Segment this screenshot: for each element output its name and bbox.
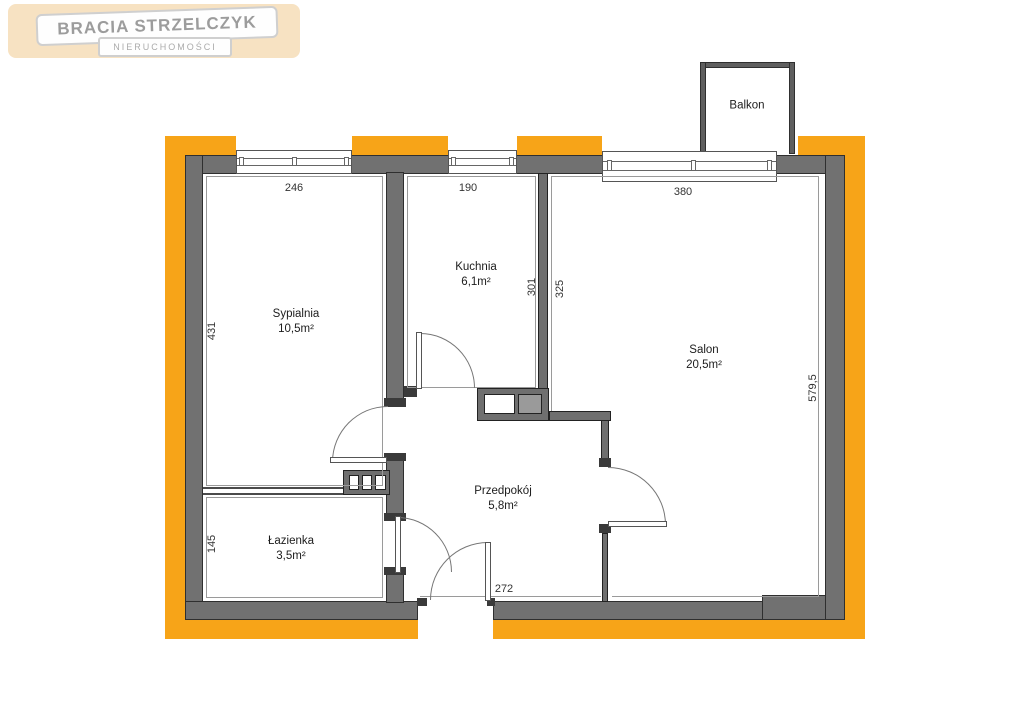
salon-door-leaf — [608, 521, 667, 527]
balcony-wall-right — [789, 62, 795, 154]
wall-hall-salon-lower — [602, 533, 608, 602]
frame-bottom-1 — [185, 619, 418, 639]
kitchen-duct-white-box — [484, 394, 515, 414]
bedroom-window-icon — [236, 150, 352, 174]
kitchen-duct-gray-box — [518, 394, 542, 414]
room-name: Salon — [686, 343, 722, 358]
dim-salon-window: 380 — [674, 186, 692, 198]
wall-left — [185, 155, 203, 620]
room-area: 20,5m² — [686, 358, 722, 373]
wall-hall-salon-upper — [601, 420, 609, 460]
wall-right — [825, 155, 845, 620]
room-label-lazienka: Łazienka 3,5m² — [268, 534, 314, 564]
wall-bedroom-kitchen — [386, 172, 404, 407]
wall-kitchen-salon — [538, 173, 548, 390]
room-area: 5,8m² — [474, 499, 532, 514]
room-area: 6,1m² — [455, 275, 497, 290]
frame-top-2 — [352, 136, 448, 156]
room-label-sypialnia: Sypialnia 10,5m² — [273, 307, 320, 337]
frame-top-1 — [185, 136, 236, 156]
entry-door-jamb — [417, 598, 427, 606]
room-label-balkon: Balkon — [729, 99, 764, 114]
room-name: Przedpokój — [474, 484, 532, 499]
logo-subbanner: NIERUCHOMOŚCI — [98, 37, 232, 57]
wall-top-3 — [516, 155, 603, 174]
room-name: Balkon — [729, 99, 764, 114]
entry-door-leaf — [485, 542, 491, 601]
wall-bottom-1 — [185, 601, 418, 620]
wall-bedroom-bath — [203, 487, 345, 495]
frame-bottom-2 — [493, 619, 845, 639]
room-name: Sypialnia — [273, 307, 320, 322]
room-name: Łazienka — [268, 534, 314, 549]
frame-right — [845, 136, 865, 639]
salon-inner-line-left — [551, 176, 552, 411]
salon-window-icon — [602, 151, 777, 182]
wall-bottom-3 — [762, 595, 826, 620]
room-area: 3,5m² — [268, 549, 314, 564]
salon-door-arc — [608, 467, 666, 525]
salon-inner-line-top — [551, 176, 818, 177]
wall-cap — [599, 458, 611, 467]
frame-left — [165, 136, 185, 639]
dim-bedroom-left-wall: 431 — [206, 322, 218, 340]
salon-inner-line-bottom — [612, 596, 818, 597]
dim-bedroom-window: 246 — [285, 182, 303, 194]
frame-top-4 — [798, 136, 845, 156]
room-area: 10,5m² — [273, 322, 320, 337]
logo-subtitle: NIERUCHOMOŚCI — [113, 42, 217, 52]
kitchen-door-leaf — [416, 332, 422, 389]
dim-kitchen-right-wall: 301 — [526, 278, 538, 296]
bathroom-door-leaf — [395, 516, 401, 573]
room-label-kuchnia: Kuchnia 6,1m² — [455, 260, 497, 290]
dim-entry-wall: 272 — [495, 583, 513, 595]
dim-salon-right-wall: 579,5 — [807, 374, 819, 402]
wall-bottom-2 — [493, 601, 763, 620]
kitchen-window-icon — [448, 150, 517, 174]
room-label-salon: Salon 20,5m² — [686, 343, 722, 373]
logo-title: BRACIA STRZELCZYK — [57, 13, 257, 40]
bedroom-door-leaf — [330, 457, 387, 463]
wall-hall-bath-lower — [386, 572, 404, 603]
floorplan: BRACIA STRZELCZYK NIERUCHOMOŚCI — [0, 0, 1024, 724]
room-name: Kuchnia — [455, 260, 497, 275]
dim-bathroom-left-wall: 145 — [206, 535, 218, 553]
dim-salon-left-wall: 325 — [554, 280, 566, 298]
agency-logo: BRACIA STRZELCZYK NIERUCHOMOŚCI — [8, 4, 300, 58]
dim-kitchen-window: 190 — [459, 182, 477, 194]
room-label-przedpokoj: Przedpokój 5,8m² — [474, 484, 532, 514]
frame-top-3 — [517, 136, 602, 156]
